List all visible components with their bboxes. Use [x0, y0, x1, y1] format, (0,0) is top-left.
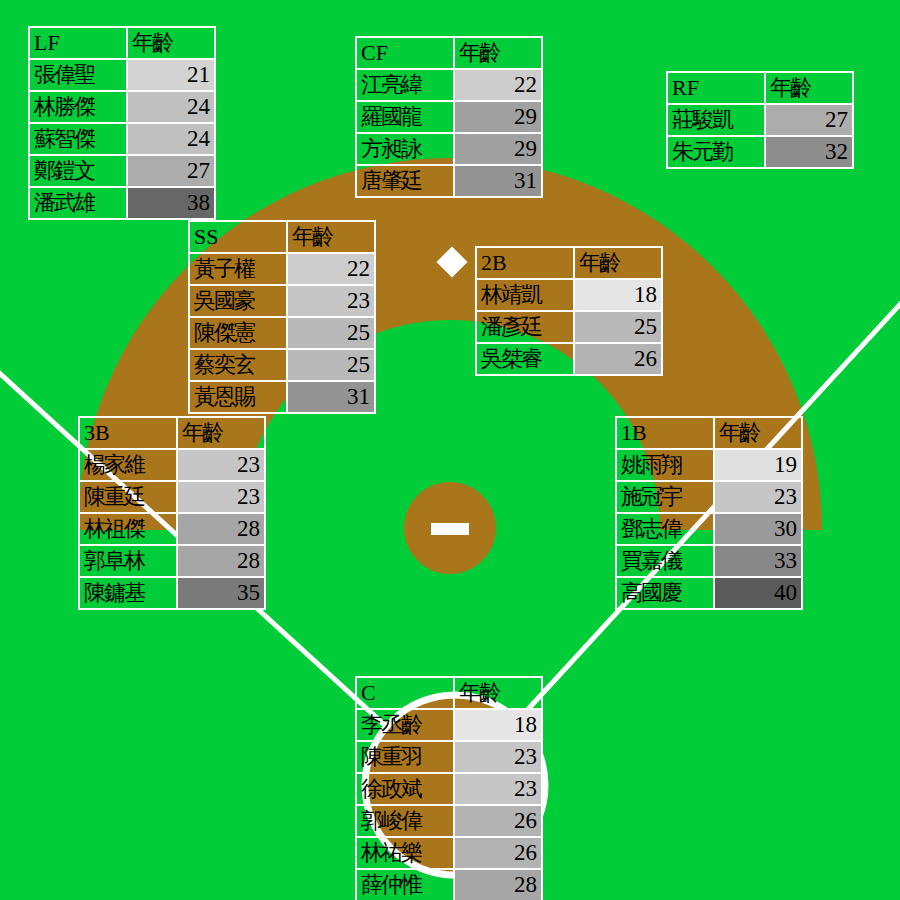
- player-row: 鄧志偉30: [616, 513, 802, 545]
- player-age-cell: 26: [574, 343, 662, 375]
- player-row: 羅國龍29: [356, 101, 542, 133]
- player-age-cell: 28: [454, 869, 542, 900]
- player-age-cell: 23: [454, 741, 542, 773]
- player-name-cell: 陳傑憲: [189, 317, 287, 349]
- player-row: 薛仲惟28: [356, 869, 542, 900]
- player-name-cell: 鄧志偉: [616, 513, 714, 545]
- position-table-CF: CF 年齡 江亮緯22羅國龍29方昶詠29唐肇廷31: [355, 36, 543, 198]
- player-age-cell: 21: [127, 59, 215, 91]
- roster-table: 1B 年齡 姚雨翔19施冠宇23鄧志偉30買嘉儀33高國慶40: [615, 416, 803, 610]
- player-row: 林靖凱18: [476, 279, 662, 311]
- player-age-cell: 23: [177, 449, 265, 481]
- player-row: 郭峻偉26: [356, 805, 542, 837]
- player-row: 姚雨翔19: [616, 449, 802, 481]
- position-code-header: 3B: [79, 417, 177, 449]
- player-row: 陳重羽23: [356, 741, 542, 773]
- age-column-header: 年齡: [765, 72, 853, 104]
- age-column-header: 年齡: [454, 677, 542, 709]
- player-name-cell: 林祖傑: [79, 513, 177, 545]
- position-code-header: 1B: [616, 417, 714, 449]
- player-age-cell: 25: [287, 317, 375, 349]
- player-name-cell: 陳鏞基: [79, 577, 177, 609]
- player-row: 鄭鎧文27: [29, 155, 215, 187]
- player-name-cell: 朱元勤: [667, 136, 765, 168]
- player-row: 張偉聖21: [29, 59, 215, 91]
- roster-table: SS 年齡 黃子權22吳國豪23陳傑憲25蔡奕玄25黃恩賜31: [188, 220, 376, 414]
- player-age-cell: 29: [454, 101, 542, 133]
- player-age-cell: 27: [127, 155, 215, 187]
- position-code-header: CF: [356, 37, 454, 69]
- player-age-cell: 30: [714, 513, 802, 545]
- age-column-header: 年齡: [454, 37, 542, 69]
- roster-table: CF 年齡 江亮緯22羅國龍29方昶詠29唐肇廷31: [355, 36, 543, 198]
- player-age-cell: 28: [177, 513, 265, 545]
- table-header-row: RF 年齡: [667, 72, 853, 104]
- player-name-cell: 李丞齡: [356, 709, 454, 741]
- position-code-header: SS: [189, 221, 287, 253]
- player-age-cell: 23: [714, 481, 802, 513]
- player-age-cell: 23: [287, 285, 375, 317]
- age-column-header: 年齡: [574, 247, 662, 279]
- position-code-header: RF: [667, 72, 765, 104]
- roster-table: LF 年齡 張偉聖21林勝傑24蘇智傑24鄭鎧文27潘武雄38: [28, 26, 216, 220]
- player-row: 吳桀睿26: [476, 343, 662, 375]
- player-row: 陳重廷23: [79, 481, 265, 513]
- player-row: 江亮緯22: [356, 69, 542, 101]
- player-name-cell: 買嘉儀: [616, 545, 714, 577]
- player-age-cell: 24: [127, 91, 215, 123]
- player-name-cell: 潘武雄: [29, 187, 127, 219]
- age-column-header: 年齡: [177, 417, 265, 449]
- player-name-cell: 郭阜林: [79, 545, 177, 577]
- player-name-cell: 蔡奕玄: [189, 349, 287, 381]
- age-column-header: 年齡: [714, 417, 802, 449]
- player-name-cell: 陳重廷: [79, 481, 177, 513]
- position-code-header: LF: [29, 27, 127, 59]
- player-name-cell: 吳國豪: [189, 285, 287, 317]
- player-row: 郭阜林28: [79, 545, 265, 577]
- player-row: 楊家維23: [79, 449, 265, 481]
- player-row: 黃恩賜31: [189, 381, 375, 413]
- player-age-cell: 18: [574, 279, 662, 311]
- player-name-cell: 潘彥廷: [476, 311, 574, 343]
- position-table-3B: 3B 年齡 楊家維23陳重廷23林祖傑28郭阜林28陳鏞基35: [78, 416, 266, 610]
- player-row: 買嘉儀33: [616, 545, 802, 577]
- table-header-row: 1B 年齡: [616, 417, 802, 449]
- player-row: 施冠宇23: [616, 481, 802, 513]
- player-name-cell: 陳重羽: [356, 741, 454, 773]
- position-code-header: C: [356, 677, 454, 709]
- player-age-cell: 40: [714, 577, 802, 609]
- player-age-cell: 19: [714, 449, 802, 481]
- table-header-row: SS 年齡: [189, 221, 375, 253]
- player-row: 林祐樂26: [356, 837, 542, 869]
- table-header-row: C 年齡: [356, 677, 542, 709]
- player-age-cell: 25: [574, 311, 662, 343]
- player-name-cell: 林靖凱: [476, 279, 574, 311]
- player-name-cell: 張偉聖: [29, 59, 127, 91]
- player-name-cell: 鄭鎧文: [29, 155, 127, 187]
- roster-table: 3B 年齡 楊家維23陳重廷23林祖傑28郭阜林28陳鏞基35: [78, 416, 266, 610]
- player-name-cell: 林祐樂: [356, 837, 454, 869]
- player-name-cell: 姚雨翔: [616, 449, 714, 481]
- player-age-cell: 29: [454, 133, 542, 165]
- player-age-cell: 23: [177, 481, 265, 513]
- player-name-cell: 楊家維: [79, 449, 177, 481]
- player-name-cell: 方昶詠: [356, 133, 454, 165]
- player-age-cell: 38: [127, 187, 215, 219]
- player-row: 林勝傑24: [29, 91, 215, 123]
- player-name-cell: 高國慶: [616, 577, 714, 609]
- player-row: 吳國豪23: [189, 285, 375, 317]
- player-name-cell: 施冠宇: [616, 481, 714, 513]
- player-row: 徐政斌23: [356, 773, 542, 805]
- roster-table: 2B 年齡 林靖凱18潘彥廷25吳桀睿26: [475, 246, 663, 376]
- player-row: 黃子權22: [189, 253, 375, 285]
- table-header-row: CF 年齡: [356, 37, 542, 69]
- player-name-cell: 江亮緯: [356, 69, 454, 101]
- player-age-cell: 35: [177, 577, 265, 609]
- player-age-cell: 18: [454, 709, 542, 741]
- player-name-cell: 黃子權: [189, 253, 287, 285]
- position-code-header: 2B: [476, 247, 574, 279]
- position-table-LF: LF 年齡 張偉聖21林勝傑24蘇智傑24鄭鎧文27潘武雄38: [28, 26, 216, 220]
- roster-table: C 年齡 李丞齡18陳重羽23徐政斌23郭峻偉26林祐樂26薛仲惟28: [355, 676, 543, 900]
- player-row: 朱元勤32: [667, 136, 853, 168]
- player-age-cell: 28: [177, 545, 265, 577]
- player-row: 莊駿凱27: [667, 104, 853, 136]
- player-row: 林祖傑28: [79, 513, 265, 545]
- player-age-cell: 23: [454, 773, 542, 805]
- player-row: 方昶詠29: [356, 133, 542, 165]
- player-age-cell: 27: [765, 104, 853, 136]
- player-row: 高國慶40: [616, 577, 802, 609]
- position-table-C: C 年齡 李丞齡18陳重羽23徐政斌23郭峻偉26林祐樂26薛仲惟28: [355, 676, 543, 900]
- player-age-cell: 22: [287, 253, 375, 285]
- roster-table: RF 年齡 莊駿凱27朱元勤32: [666, 71, 854, 169]
- player-name-cell: 羅國龍: [356, 101, 454, 133]
- player-name-cell: 唐肇廷: [356, 165, 454, 197]
- position-table-RF: RF 年齡 莊駿凱27朱元勤32: [666, 71, 854, 169]
- table-header-row: 3B 年齡: [79, 417, 265, 449]
- player-age-cell: 31: [454, 165, 542, 197]
- player-name-cell: 薛仲惟: [356, 869, 454, 900]
- player-age-cell: 22: [454, 69, 542, 101]
- player-row: 李丞齡18: [356, 709, 542, 741]
- player-age-cell: 26: [454, 837, 542, 869]
- table-header-row: LF 年齡: [29, 27, 215, 59]
- position-table-1B: 1B 年齡 姚雨翔19施冠宇23鄧志偉30買嘉儀33高國慶40: [615, 416, 803, 610]
- age-column-header: 年齡: [287, 221, 375, 253]
- player-row: 蔡奕玄25: [189, 349, 375, 381]
- pitcher-rubber: [431, 523, 469, 535]
- player-age-cell: 31: [287, 381, 375, 413]
- player-row: 唐肇廷31: [356, 165, 542, 197]
- player-row: 陳鏞基35: [79, 577, 265, 609]
- player-name-cell: 郭峻偉: [356, 805, 454, 837]
- player-age-cell: 32: [765, 136, 853, 168]
- player-row: 陳傑憲25: [189, 317, 375, 349]
- player-name-cell: 蘇智傑: [29, 123, 127, 155]
- player-age-cell: 25: [287, 349, 375, 381]
- player-name-cell: 吳桀睿: [476, 343, 574, 375]
- player-name-cell: 黃恩賜: [189, 381, 287, 413]
- position-table-SS: SS 年齡 黃子權22吳國豪23陳傑憲25蔡奕玄25黃恩賜31: [188, 220, 376, 414]
- player-row: 潘武雄38: [29, 187, 215, 219]
- player-row: 蘇智傑24: [29, 123, 215, 155]
- player-row: 潘彥廷25: [476, 311, 662, 343]
- player-age-cell: 24: [127, 123, 215, 155]
- player-name-cell: 莊駿凱: [667, 104, 765, 136]
- position-table-2B: 2B 年齡 林靖凱18潘彥廷25吳桀睿26: [475, 246, 663, 376]
- player-age-cell: 26: [454, 805, 542, 837]
- player-name-cell: 徐政斌: [356, 773, 454, 805]
- player-age-cell: 33: [714, 545, 802, 577]
- player-name-cell: 林勝傑: [29, 91, 127, 123]
- age-column-header: 年齡: [127, 27, 215, 59]
- table-header-row: 2B 年齡: [476, 247, 662, 279]
